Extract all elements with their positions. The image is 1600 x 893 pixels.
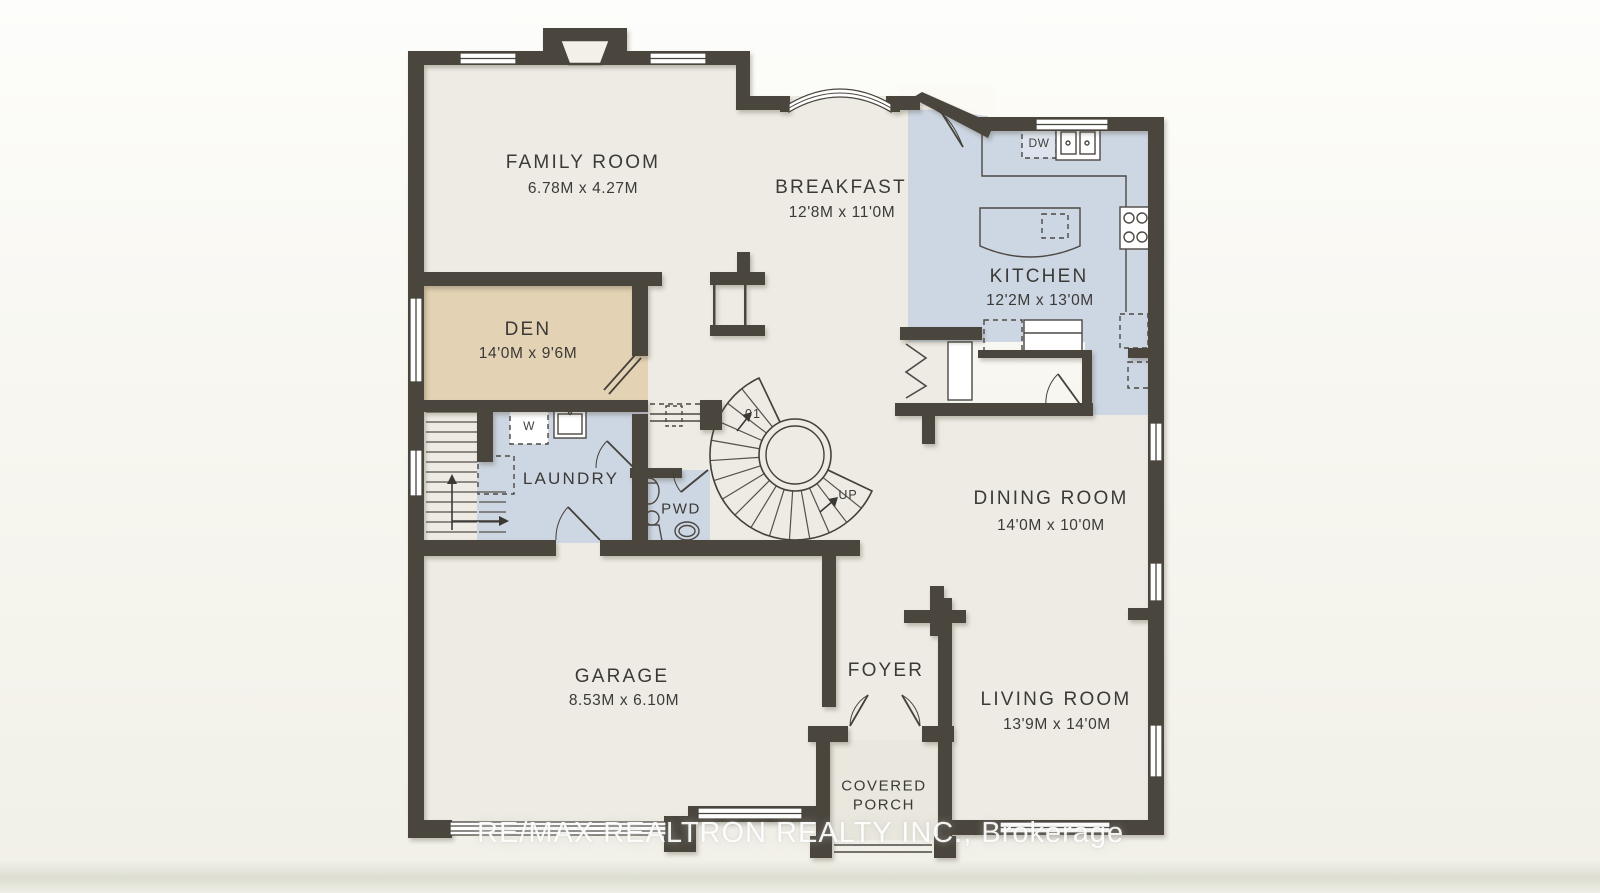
kitchen-label: KITCHEN [990, 266, 1089, 288]
den-floor [424, 286, 648, 400]
den-window [410, 298, 422, 382]
breakfast-label: BREAKFAST [775, 177, 907, 199]
living-window-side [1150, 725, 1162, 777]
den-dims: 14'0M x 9'6M [479, 345, 577, 363]
foyer-label: FOYER [848, 660, 924, 682]
living-room-dims: 13'9M x 14'0M [1003, 716, 1111, 734]
covered-porch-label-line1: COVERED [841, 778, 926, 795]
fireplace [560, 40, 610, 64]
dishwasher-label: DW [1029, 136, 1050, 150]
kitchen-floor-a [908, 110, 988, 342]
stove [1120, 207, 1150, 249]
laundry-sink [554, 410, 586, 438]
brokerage-watermark: RE/MAX REALTRON REALTY INC., Brokerage [477, 817, 1124, 850]
kitchen-closet-door [1046, 374, 1082, 407]
floor-plan-drawing [0, 0, 1600, 893]
living-room-label: LIVING ROOM [981, 689, 1132, 711]
dining-room-label: DINING ROOM [973, 488, 1128, 510]
garage-label: GARAGE [575, 666, 670, 688]
kitchen-window [1036, 119, 1108, 130]
breakfast-dims: 12'8M x 11'0M [789, 204, 895, 222]
family-window-2 [650, 53, 706, 64]
family-window-1 [460, 53, 516, 64]
stair-level-label: 01 [745, 407, 761, 421]
floor-plan-page: FAMILY ROOM 6.78M x 4.27M BREAKFAST 12'8… [0, 0, 1600, 893]
pwd-label: PWD [661, 501, 701, 518]
washer-label: W [523, 419, 535, 433]
laundry-label: LAUNDRY [523, 469, 619, 489]
dining-window-2 [1150, 563, 1162, 601]
garage-dims: 8.53M x 6.10M [569, 692, 679, 710]
covered-porch-label-line2: PORCH [853, 797, 915, 814]
family-room-dims: 6.78M x 4.27M [528, 180, 638, 198]
kitchen-dims: 12'2M x 13'0M [986, 292, 1094, 310]
foyer-floor [822, 543, 952, 740]
dining-room-dims: 14'0M x 10'0M [997, 517, 1105, 535]
page-bottom-shadow [0, 860, 1600, 893]
kitchen-sink [1056, 126, 1100, 160]
den-label: DEN [505, 319, 552, 341]
stair-up-label: UP [838, 488, 857, 502]
closet-door-panel [948, 342, 972, 400]
lower-counter [1024, 320, 1082, 352]
family-room-label: FAMILY ROOM [506, 152, 660, 174]
stair-window [410, 450, 422, 496]
dining-window-1 [1150, 423, 1162, 461]
